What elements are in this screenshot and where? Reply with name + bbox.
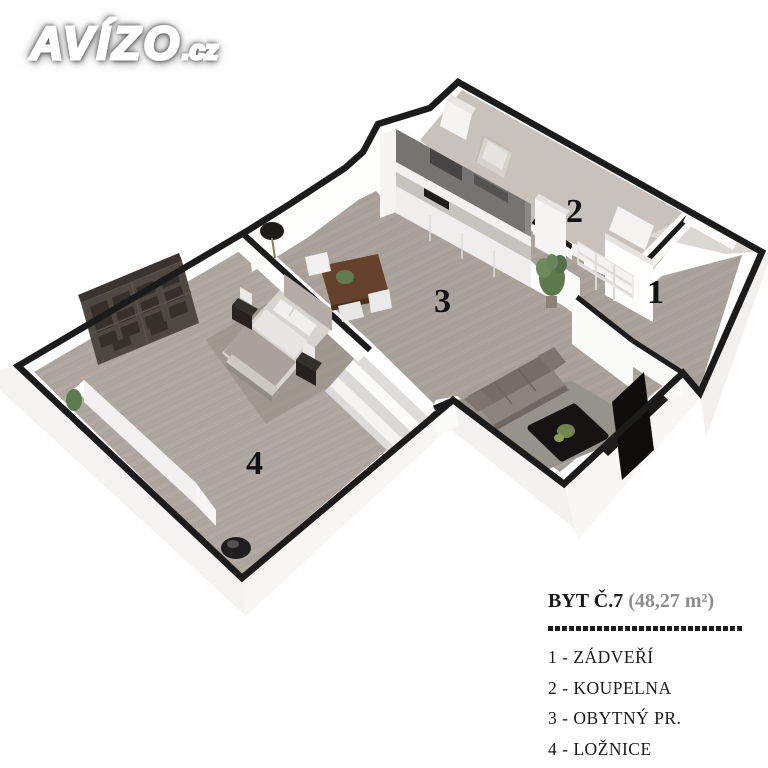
svg-text:1: 1	[647, 274, 664, 311]
svg-text:4: 4	[246, 445, 263, 482]
svg-text:3: 3	[434, 283, 451, 320]
svg-text:2: 2	[566, 193, 583, 230]
